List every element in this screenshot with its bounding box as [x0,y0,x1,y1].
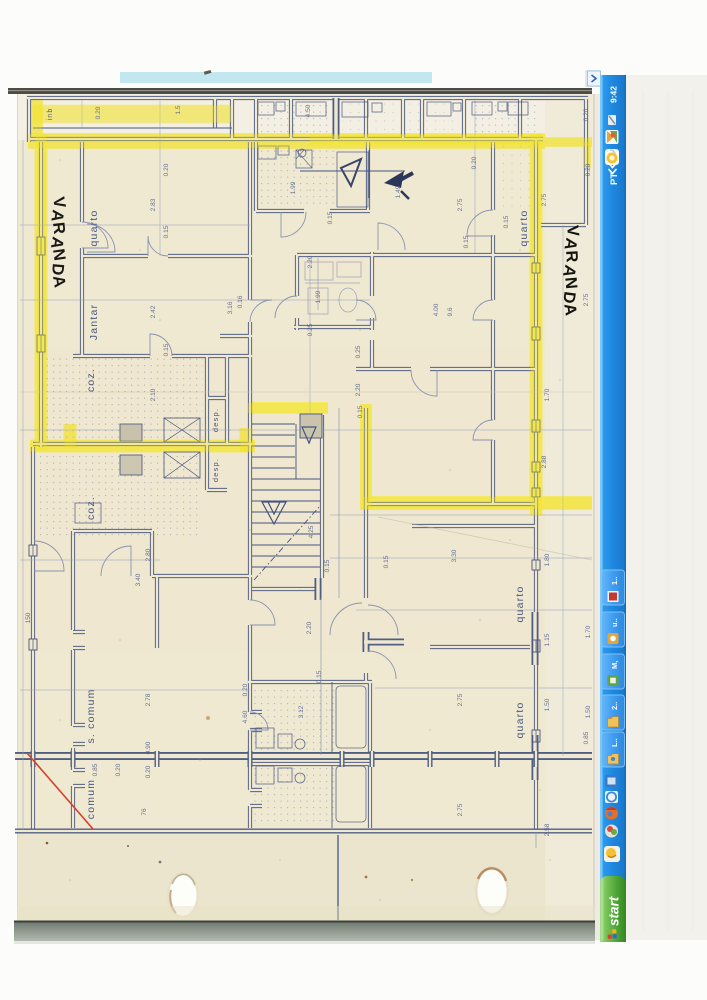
svg-text:0.85: 0.85 [92,763,99,776]
svg-text:2.10: 2.10 [150,388,157,401]
svg-text:2.75: 2.75 [457,693,464,706]
svg-text:0.20: 0.20 [471,156,478,169]
svg-text:2.80: 2.80 [145,548,152,561]
svg-text:0.20: 0.20 [163,163,170,176]
svg-text:3.16: 3.16 [227,301,234,314]
svg-text:2.75: 2.75 [583,293,590,306]
svg-text:76: 76 [141,808,148,816]
svg-text:0.20: 0.20 [242,683,249,696]
svg-text:4.50: 4.50 [305,104,312,117]
svg-text:2.20: 2.20 [355,383,362,396]
svg-text:coz.: coz. [85,496,97,520]
svg-text:4.60: 4.60 [242,710,249,723]
svg-text:1.99: 1.99 [315,290,322,303]
svg-text:M,: M, [610,661,619,669]
svg-text:comum: comum [85,779,97,819]
svg-text:1.50: 1.50 [544,698,551,711]
svg-text:0.25: 0.25 [307,323,314,336]
svg-text:coz.: coz. [85,368,97,392]
svg-text:0.20: 0.20 [115,763,122,776]
svg-text:0.85: 0.85 [583,731,590,744]
svg-text:0.15: 0.15 [383,555,390,568]
svg-text:2.20: 2.20 [307,255,314,268]
svg-text:0.15: 0.15 [463,235,470,248]
svg-text:PT: PT [609,173,620,185]
svg-text:1.80: 1.80 [544,553,551,566]
svg-text:9:42: 9:42 [609,86,619,103]
svg-text:3.12: 3.12 [298,705,305,718]
svg-text:0.15: 0.15 [316,670,323,683]
svg-text:1.15: 1.15 [544,633,551,646]
svg-text:2.75: 2.75 [457,198,464,211]
svg-text:quarto: quarto [518,210,530,247]
svg-text:150: 150 [25,612,32,623]
svg-text:4.25: 4.25 [308,525,315,538]
svg-text:0.90: 0.90 [145,741,152,754]
svg-text:2.20: 2.20 [306,621,313,634]
svg-text:L..: L.. [610,738,619,747]
svg-text:0.15: 0.15 [163,343,170,356]
svg-text:2.75: 2.75 [541,193,548,206]
svg-text:1.50: 1.50 [585,705,592,718]
svg-text:quarto: quarto [88,210,100,247]
svg-text:9.6: 9.6 [447,307,454,316]
svg-text:quarto: quarto [514,702,526,739]
svg-text:s. comum: s. comum [85,688,97,743]
svg-text:3.40: 3.40 [135,573,142,586]
svg-text:2..: 2.. [610,702,619,710]
svg-text:0.15: 0.15 [503,215,510,228]
svg-text:2.75: 2.75 [457,803,464,816]
svg-text:desp.: desp. [211,408,220,432]
svg-text:2.88: 2.88 [541,455,548,468]
svg-text:1.99: 1.99 [290,181,297,194]
svg-text:0.20: 0.20 [585,163,592,176]
svg-text:0.15: 0.15 [324,559,331,572]
svg-text:1.70: 1.70 [544,388,551,401]
svg-text:u..: u.. [610,618,619,627]
svg-text:0.16: 0.16 [237,295,244,308]
svg-text:0.15: 0.15 [163,225,170,238]
svg-text:1.5: 1.5 [175,105,182,114]
svg-text:Jantar: Jantar [88,304,100,340]
svg-text:4.00: 4.00 [433,303,440,316]
svg-text:3.30: 3.30 [451,549,458,562]
svg-text:inb: inb [47,108,54,121]
svg-text:0.20: 0.20 [583,108,590,121]
svg-text:2.78: 2.78 [145,693,152,706]
svg-text:0.20: 0.20 [95,106,102,119]
svg-text:1.49: 1.49 [395,185,402,198]
svg-text:0.15: 0.15 [327,211,334,224]
svg-text:2.42: 2.42 [150,305,157,318]
svg-text:0.20: 0.20 [145,765,152,778]
svg-text:2.58: 2.58 [544,823,551,836]
svg-text:1.70: 1.70 [585,625,592,638]
svg-text:quarto: quarto [514,586,526,623]
svg-text:0.15: 0.15 [357,405,364,418]
svg-text:2.83: 2.83 [150,198,157,211]
svg-text:1..: 1.. [610,577,619,585]
svg-text:0.25: 0.25 [355,345,362,358]
svg-text:desp.: desp. [211,458,220,482]
svg-text:start: start [607,896,622,926]
